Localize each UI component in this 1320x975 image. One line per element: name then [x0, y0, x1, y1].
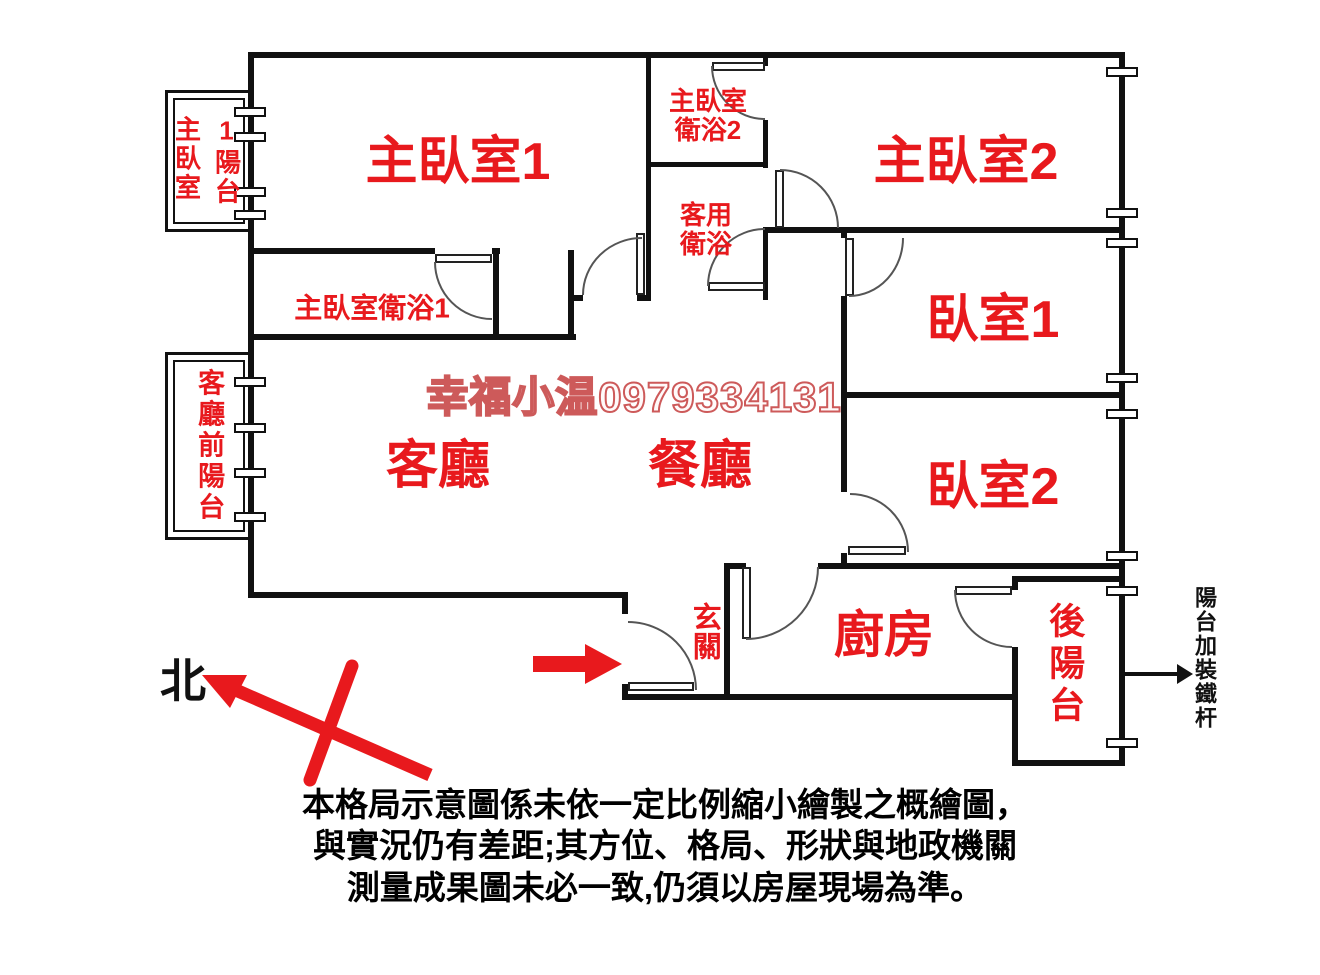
wall	[724, 563, 730, 700]
room-label-dining-room: 餐廳	[648, 437, 752, 495]
door-swing-icon	[850, 494, 908, 552]
room-label-master-balcony: 主臥室 1陽台	[169, 116, 246, 207]
wall	[248, 334, 576, 340]
wall	[841, 227, 847, 238]
room-label-master-bath-1: 主臥室衛浴1	[294, 292, 450, 323]
wall	[622, 592, 628, 614]
wall	[818, 563, 1125, 569]
disclaimer-line: 本格局示意圖係未依一定比例縮小繪製之概繪圖，	[265, 784, 1065, 825]
wall	[1012, 576, 1125, 582]
wall	[1012, 760, 1125, 766]
room-label-living-room: 客廳	[386, 437, 490, 495]
disclaimer-text: 本格局示意圖係未依一定比例縮小繪製之概繪圖， 與實況仍有差距;其方位、格局、形狀…	[265, 784, 1065, 908]
window-mark	[1106, 373, 1138, 383]
wall	[1012, 576, 1018, 590]
wall	[248, 592, 628, 598]
window-mark	[1106, 738, 1138, 748]
window-mark	[1106, 409, 1138, 419]
door-swing-icon	[780, 170, 838, 228]
wall	[248, 248, 435, 254]
window-mark	[1106, 208, 1138, 218]
room-label-guest-bath: 客用 衛浴	[680, 201, 732, 259]
door-swing-icon	[849, 238, 903, 296]
room-label-column: 1陽台	[209, 116, 246, 207]
floor-plan: 主臥室1 主臥室2 主臥室 衛浴2 客用 衛浴 主臥室衛浴1 臥室1 臥室2 客…	[0, 0, 1320, 975]
room-label-master-bath-2: 主臥室 衛浴2	[669, 87, 747, 145]
wall	[646, 52, 651, 300]
window-mark	[234, 210, 266, 220]
wall	[493, 248, 499, 340]
window-mark	[234, 423, 266, 433]
room-label-bedroom-1: 臥室1	[927, 291, 1060, 349]
window-mark	[1106, 67, 1138, 77]
door-swing-icon	[746, 567, 818, 639]
wall	[646, 162, 768, 167]
door-swing-icon	[583, 238, 642, 295]
wall	[622, 694, 730, 700]
room-label-column: 主臥室	[169, 116, 206, 207]
iron-bar-arrow-icon	[1125, 660, 1195, 688]
window-mark	[1106, 586, 1138, 596]
wall	[248, 52, 1125, 58]
room-label-line: 衛浴2	[669, 116, 747, 145]
agent-watermark: 幸福小温0979334131	[426, 364, 842, 425]
wall	[841, 392, 1125, 398]
north-arrow-icon	[150, 640, 480, 805]
iron-bar-note: 陽台加裝鐵杆	[1188, 586, 1220, 730]
wall	[1012, 647, 1018, 766]
room-label-entry: 玄關	[688, 602, 720, 660]
room-label-kitchen: 廚房	[834, 607, 934, 663]
door-swing-icon	[955, 590, 1012, 647]
room-label-front-balcony: 客廳前陽台	[194, 369, 224, 524]
room-label-line: 客用	[680, 201, 732, 230]
room-label-line: 衛浴	[680, 230, 732, 259]
window-mark	[1106, 551, 1138, 561]
window-mark	[234, 468, 266, 478]
window-mark	[1106, 238, 1138, 248]
door-swing-icon	[628, 622, 696, 690]
wall	[763, 120, 768, 168]
disclaimer-line: 與實況仍有差距;其方位、格局、形狀與地政機關	[265, 825, 1065, 866]
entrance-arrow-icon	[525, 640, 625, 688]
window-mark	[234, 377, 266, 387]
wall	[724, 694, 1018, 700]
room-label-bedroom-2: 臥室2	[927, 458, 1060, 516]
window-mark	[234, 512, 266, 522]
wall	[637, 295, 651, 301]
room-label-master-bedroom-2: 主臥室2	[874, 133, 1059, 191]
room-label-back-balcony: 後陽台	[1044, 602, 1084, 728]
room-label-line: 主臥室	[669, 87, 747, 116]
wall	[568, 295, 583, 301]
room-label-master-bedroom-1: 主臥室1	[366, 133, 551, 191]
disclaimer-line: 測量成果圖未必一致,仍須以房屋現場為準。	[265, 867, 1065, 908]
